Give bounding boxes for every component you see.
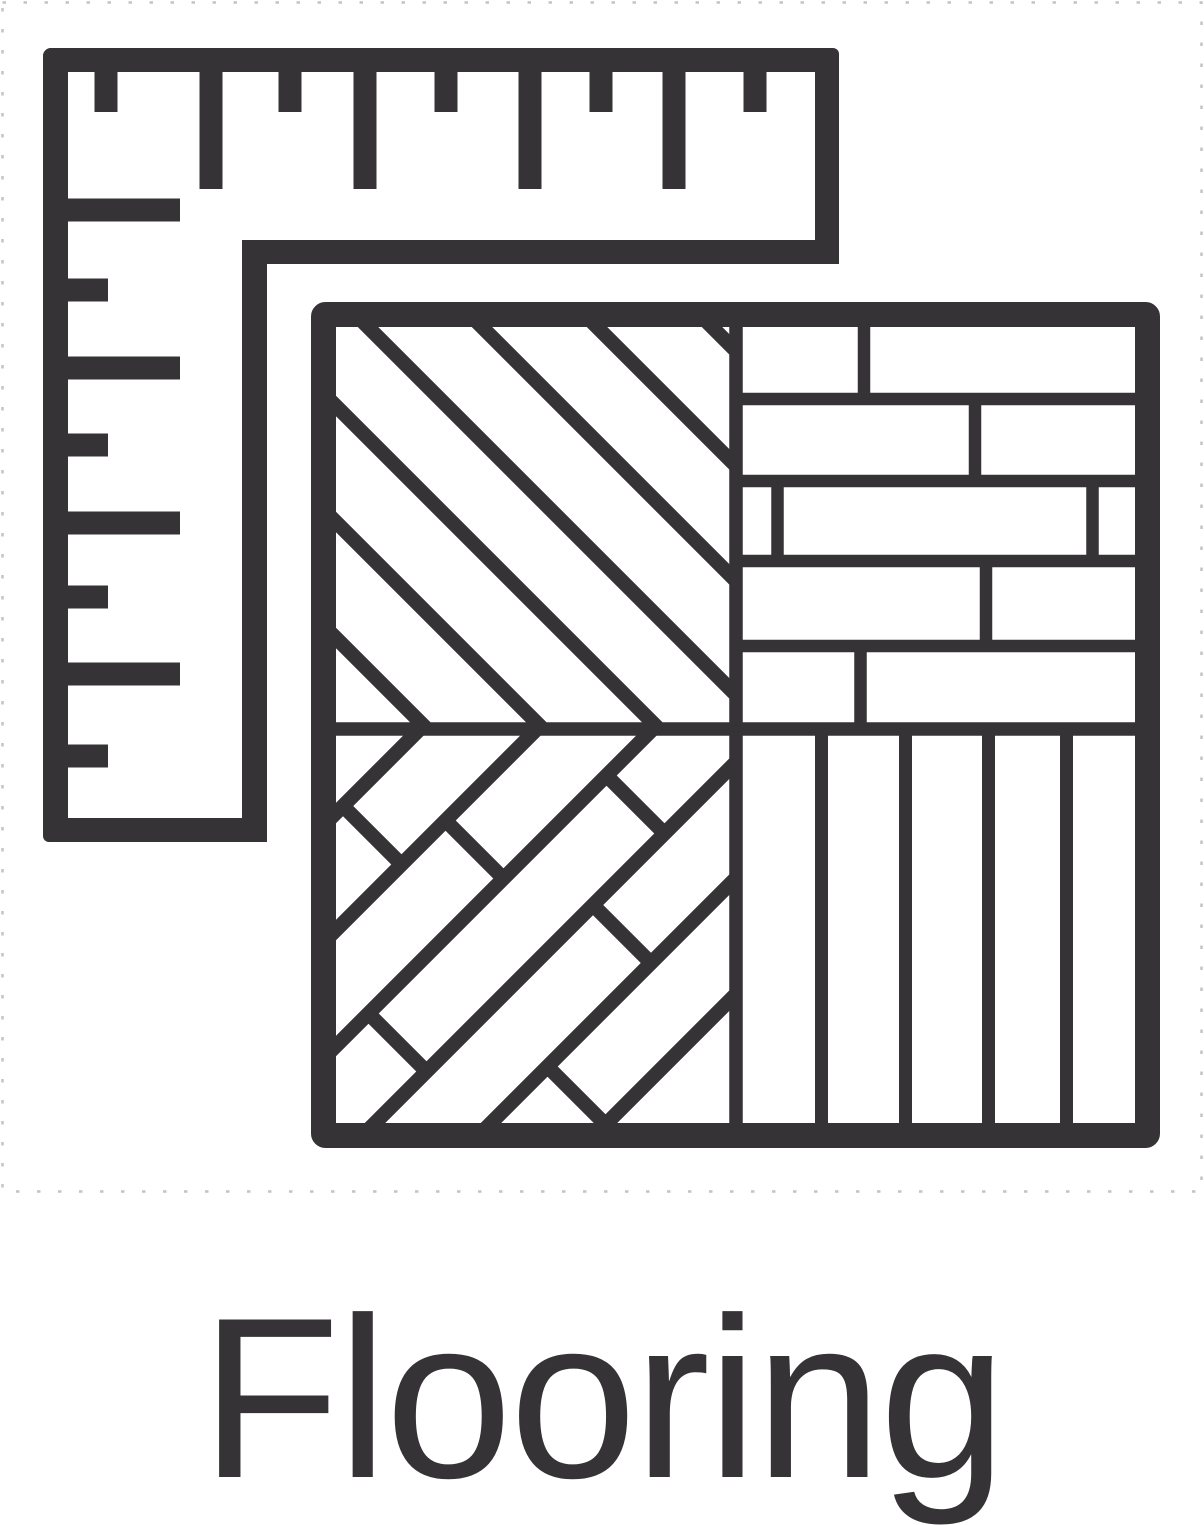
flooring-tile-icon [250, 0, 1160, 1480]
flooring-icon: Flooring [0, 0, 1204, 1525]
ruler-left-arm-end [43, 818, 267, 842]
ruler-left-arm-inner-edge [242, 240, 267, 842]
caption-label: Flooring [200, 1270, 1003, 1525]
ruler-top-arm-inner-edge [242, 240, 839, 264]
ruler-top-ticks [95, 62, 767, 189]
flooring-card: Flooring [0, 0, 1204, 1525]
ruler-top-arm-end [815, 48, 839, 264]
ruler-left-ticks [58, 199, 180, 768]
